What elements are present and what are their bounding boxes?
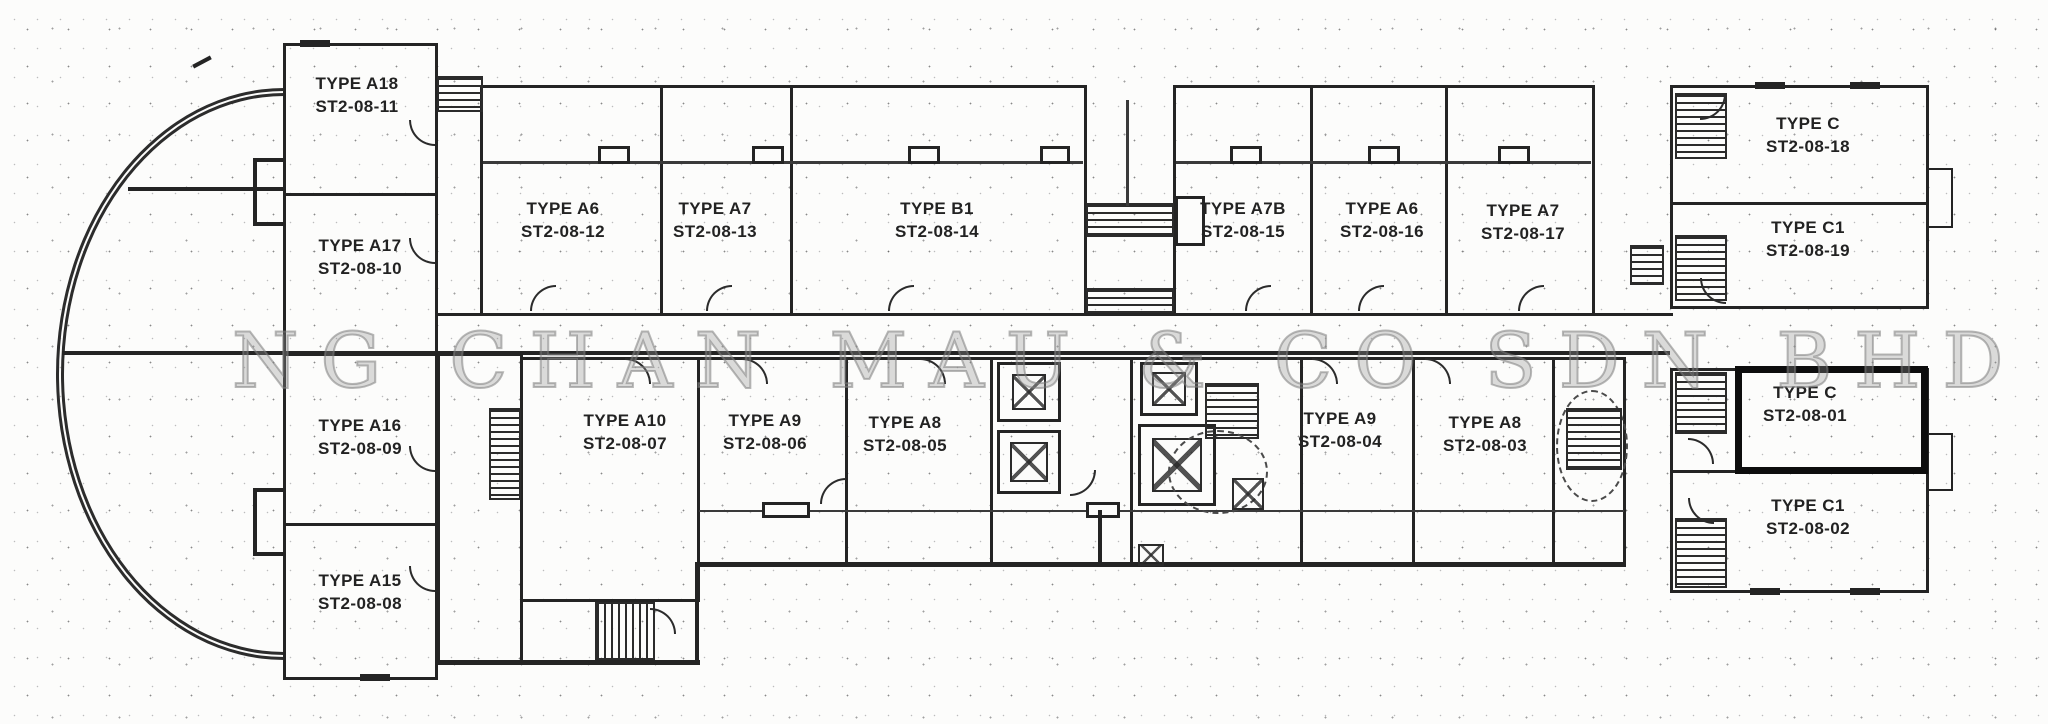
interior-wall: [1126, 100, 1129, 206]
balcony-door-notch: [1040, 146, 1070, 164]
window-notch: [1086, 502, 1120, 518]
link-bridge-symbol: [1086, 288, 1174, 316]
balcony-door-notch: [1368, 146, 1400, 164]
staircase-symbol: [1675, 518, 1727, 588]
window-tick: [1850, 82, 1880, 89]
unit-label-st2-08-17: TYPE A7 ST2-08-17: [1438, 200, 1608, 246]
scan-mark: [192, 56, 212, 69]
unit-lot: ST2-08-03: [1400, 435, 1570, 458]
unit-lot: ST2-08-19: [1723, 240, 1893, 263]
window-tick: [1850, 588, 1880, 595]
unit-type: TYPE A8: [1400, 412, 1570, 435]
wall: [695, 562, 699, 663]
unit-type: TYPE C1: [1723, 495, 1893, 518]
unit-type: TYPE A16: [275, 415, 445, 438]
unit-type: TYPE B1: [852, 198, 1022, 221]
unit-type: TYPE A17: [275, 235, 445, 258]
watermark: NG CHAN MAU & CO SDN BHD: [232, 316, 2025, 405]
unit-type: TYPE A7: [630, 198, 800, 221]
balcony-bracket: [253, 158, 283, 226]
balcony-bracket: [253, 488, 283, 556]
floor-plan-sheet: TYPE A18 ST2-08-11 TYPE A17 ST2-08-10 TY…: [0, 0, 2048, 724]
unit-type: TYPE C1: [1723, 217, 1893, 240]
unit-lot: ST2-08-17: [1438, 223, 1608, 246]
window-tick: [360, 674, 390, 681]
unit-label-st2-08-09: TYPE A16 ST2-08-09: [275, 415, 445, 461]
unit-label-st2-08-05: TYPE A8 ST2-08-05: [820, 412, 990, 458]
unit-lot: ST2-08-11: [272, 96, 442, 119]
balcony-door-notch: [752, 146, 784, 164]
staircase-symbol: [595, 602, 655, 660]
unit-label-st2-08-19: TYPE C1 ST2-08-19: [1723, 217, 1893, 263]
balcony: [1927, 168, 1953, 228]
unit-lot: ST2-08-01: [1720, 405, 1890, 428]
shaft-icon: [1138, 544, 1164, 566]
unit-label-st2-08-10: TYPE A17 ST2-08-10: [275, 235, 445, 281]
wall: [1098, 510, 1102, 565]
balcony: [1927, 433, 1953, 491]
elevator-car-icon: [1010, 442, 1048, 482]
unit-type: TYPE A15: [275, 570, 445, 593]
unit-label-st2-08-11: TYPE A18 ST2-08-11: [272, 73, 442, 119]
unit-lot: ST2-08-05: [820, 435, 990, 458]
unit-label-st2-08-08: TYPE A15 ST2-08-08: [275, 570, 445, 616]
unit-label-st2-08-13: TYPE A7 ST2-08-13: [630, 198, 800, 244]
unit-lot: ST2-08-02: [1723, 518, 1893, 541]
interior-wall: [699, 510, 1624, 512]
unit-lot: ST2-08-18: [1723, 136, 1893, 159]
unit-label-st2-08-02: TYPE C1 ST2-08-02: [1723, 495, 1893, 541]
unit-lot: ST2-08-10: [275, 258, 445, 281]
unit-lot: ST2-08-08: [275, 593, 445, 616]
window-tick: [300, 40, 330, 47]
unit-type: TYPE A7: [1438, 200, 1608, 223]
window-tick: [1755, 82, 1785, 89]
unit-label-st2-08-14: TYPE B1 ST2-08-14: [852, 198, 1022, 244]
unit-type: TYPE A8: [820, 412, 990, 435]
unit-lot: ST2-08-09: [275, 438, 445, 461]
door-swing-symbol: [650, 608, 676, 634]
staircase-symbol: [489, 408, 521, 500]
staircase-symbol: [1630, 245, 1664, 285]
balcony-door-notch: [1498, 146, 1530, 164]
unit-type: TYPE A18: [272, 73, 442, 96]
link-bridge-symbol: [437, 76, 483, 112]
shaft-icon: [1232, 478, 1264, 510]
unit-label-st2-08-12: TYPE A6 ST2-08-12: [478, 198, 648, 244]
balcony-door-notch: [1230, 146, 1262, 164]
wall: [437, 660, 700, 665]
unit-lot: ST2-08-12: [478, 221, 648, 244]
staircase-symbol: [1566, 408, 1622, 470]
unit-lot: ST2-08-14: [852, 221, 1022, 244]
unit-type: TYPE C: [1723, 113, 1893, 136]
unit-label-st2-08-18: TYPE C ST2-08-18: [1723, 113, 1893, 159]
balcony-door-notch: [598, 146, 630, 164]
window-tick: [1750, 588, 1780, 595]
unit-label-st2-08-03: TYPE A8 ST2-08-03: [1400, 412, 1570, 458]
balcony-door-notch: [908, 146, 940, 164]
unit-lot: ST2-08-13: [630, 221, 800, 244]
window-notch: [762, 502, 810, 518]
unit-type: TYPE A6: [478, 198, 648, 221]
